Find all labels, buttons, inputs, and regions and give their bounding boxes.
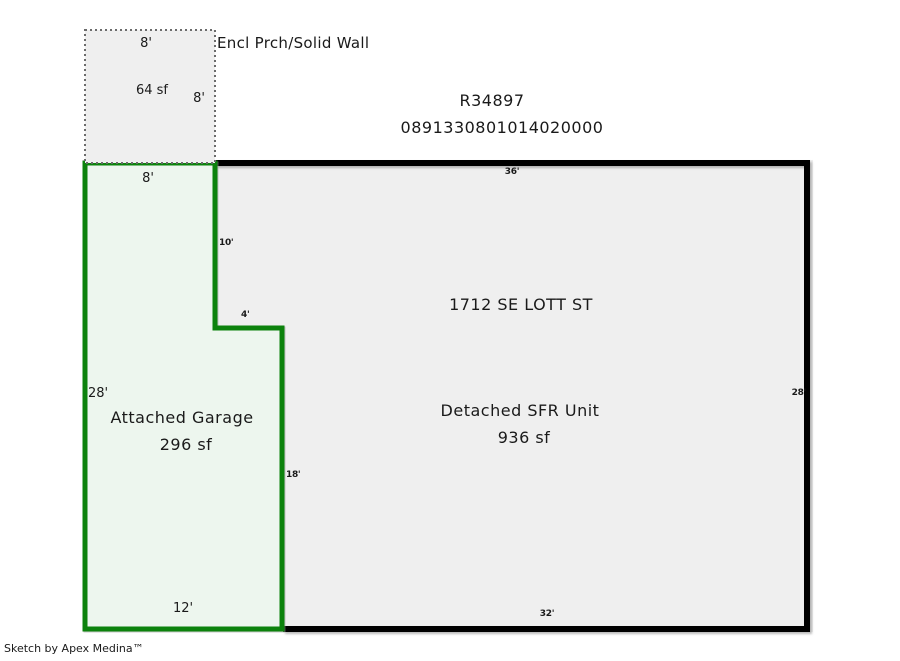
garage-dim-left: 28' [88, 387, 108, 401]
garage-area-label: 296 sf [160, 436, 213, 454]
property-sketch: R34897 0891330801014020000 Encl Prch/Sol… [0, 0, 900, 661]
porch-dim-right: 8' [193, 92, 205, 106]
porch-type-label: Encl Prch/Solid Wall [217, 35, 369, 52]
main-unit-name-label: Detached SFR Unit [441, 402, 600, 420]
sketch-credit-label: Sketch by Apex Medina™ [4, 643, 144, 655]
main-unit-dim-bottom: 32' [540, 610, 554, 620]
main-unit-dim-top: 36' [505, 168, 519, 178]
account-number-label: R34897 [459, 92, 524, 110]
garage-dim-bottom: 12' [173, 602, 193, 616]
garage-dim-right: 18' [286, 471, 300, 481]
porch-dim-top: 8' [140, 37, 152, 51]
garage-dim-notch-horizontal: 4' [241, 311, 249, 321]
main-unit-address-label: 1712 SE LOTT ST [449, 296, 593, 314]
garage-dim-notch-vertical: 10' [219, 239, 233, 249]
main-unit-area-label: 936 sf [498, 429, 551, 447]
garage-dim-top: 8' [142, 172, 154, 186]
main-unit-footprint [215, 160, 813, 632]
garage-name-label: Attached Garage [110, 409, 253, 427]
sketch-svg [0, 0, 900, 661]
main-unit-dim-right: 28' [792, 389, 806, 399]
porch-area-label: 64 sf [136, 84, 168, 98]
parcel-number-label: 0891330801014020000 [401, 119, 604, 137]
